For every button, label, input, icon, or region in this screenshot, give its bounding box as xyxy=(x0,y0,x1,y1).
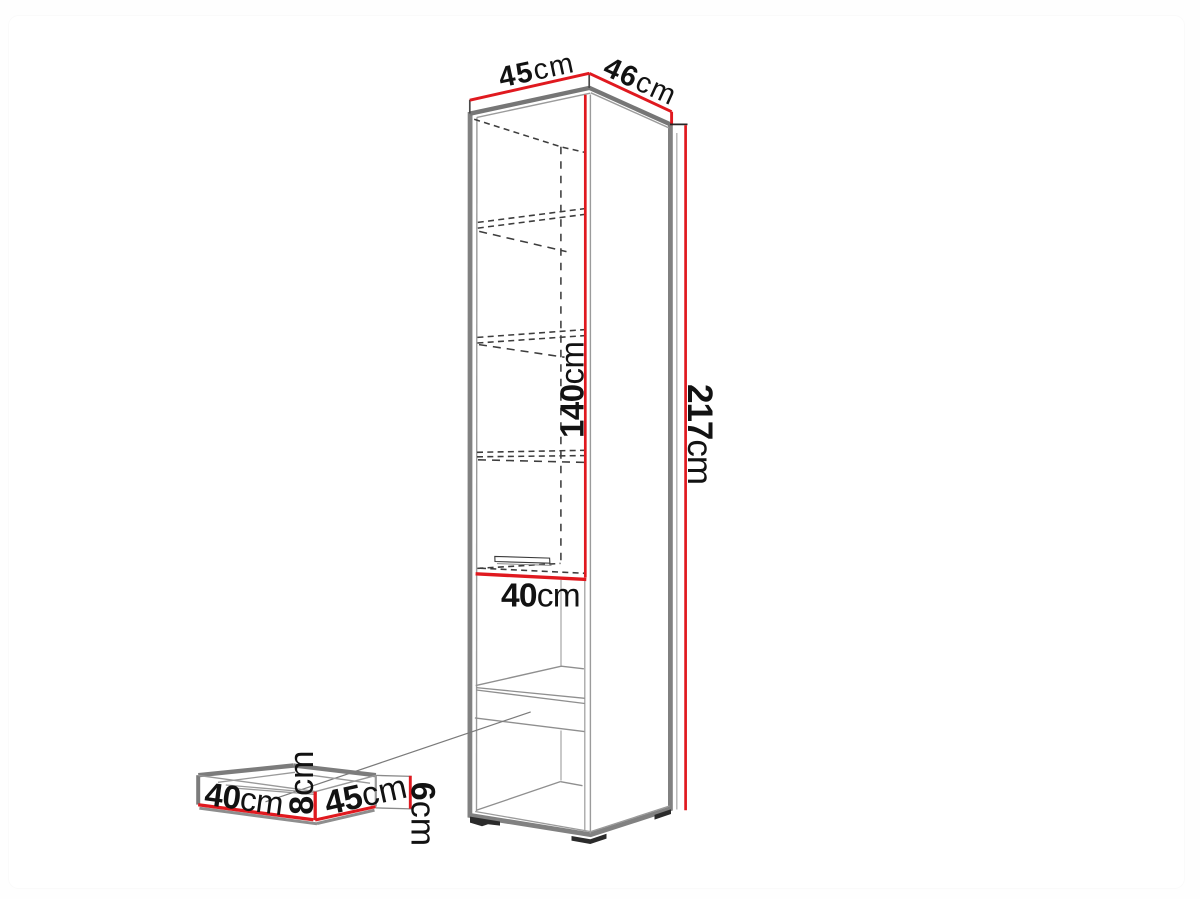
svg-text:140cm: 140cm xyxy=(554,341,591,438)
svg-text:8cm: 8cm xyxy=(283,751,321,815)
svg-text:217cm: 217cm xyxy=(680,384,719,484)
svg-text:6cm: 6cm xyxy=(403,782,441,846)
svg-text:40cm: 40cm xyxy=(501,578,580,615)
